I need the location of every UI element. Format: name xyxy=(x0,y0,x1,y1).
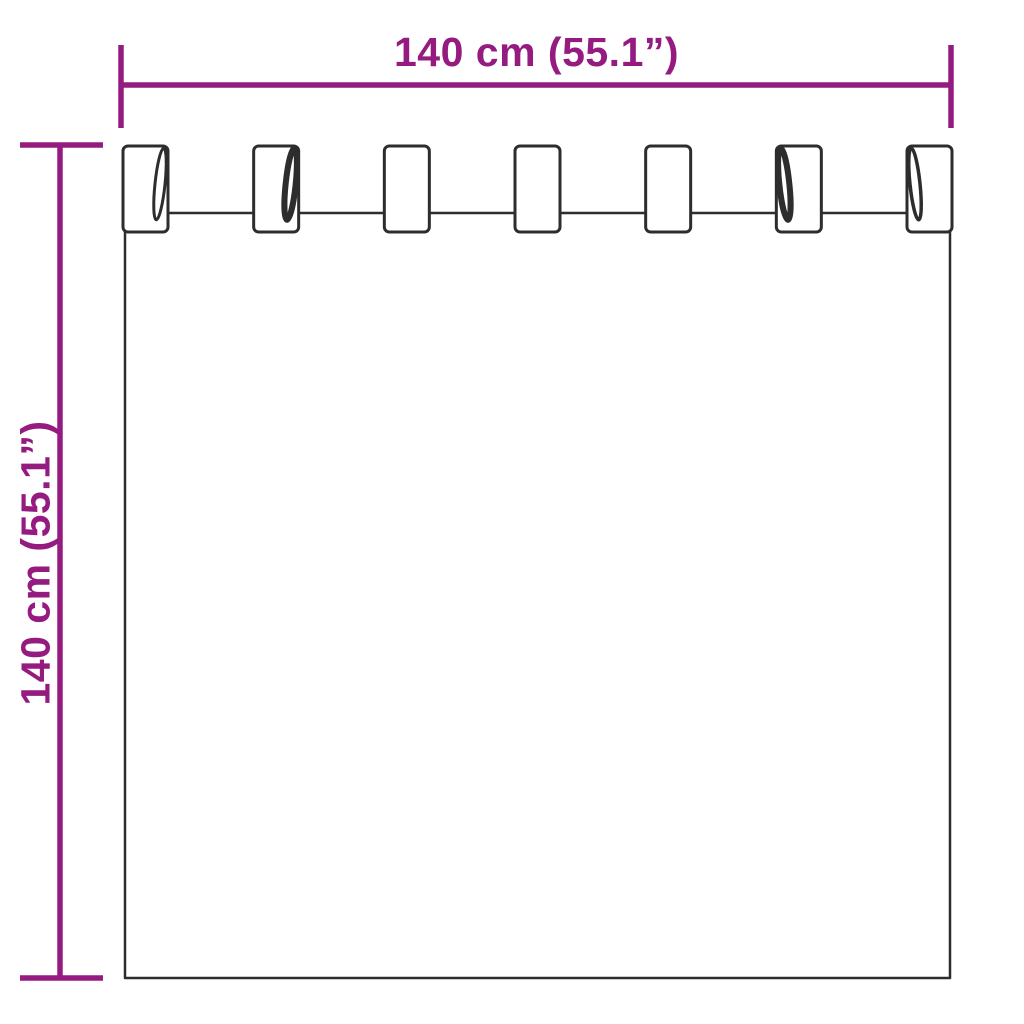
height-dimension-label: 140 cm (55.1”) xyxy=(13,420,58,705)
width-dimension-label: 140 cm (55.1”) xyxy=(121,30,952,75)
curtain-tabs xyxy=(123,146,952,232)
curtain-tab xyxy=(515,146,560,232)
curtain-panel-outline xyxy=(125,213,950,978)
product-dimension-diagram: 140 cm (55.1”) 140 cm (55.1”) xyxy=(0,0,1024,1024)
curtain-tab xyxy=(646,146,691,232)
curtain-line-drawing xyxy=(0,0,1024,1024)
curtain-tab xyxy=(907,146,952,232)
curtain-tab xyxy=(384,146,429,232)
curtain-tab xyxy=(123,146,168,232)
curtain-panel xyxy=(123,213,952,978)
